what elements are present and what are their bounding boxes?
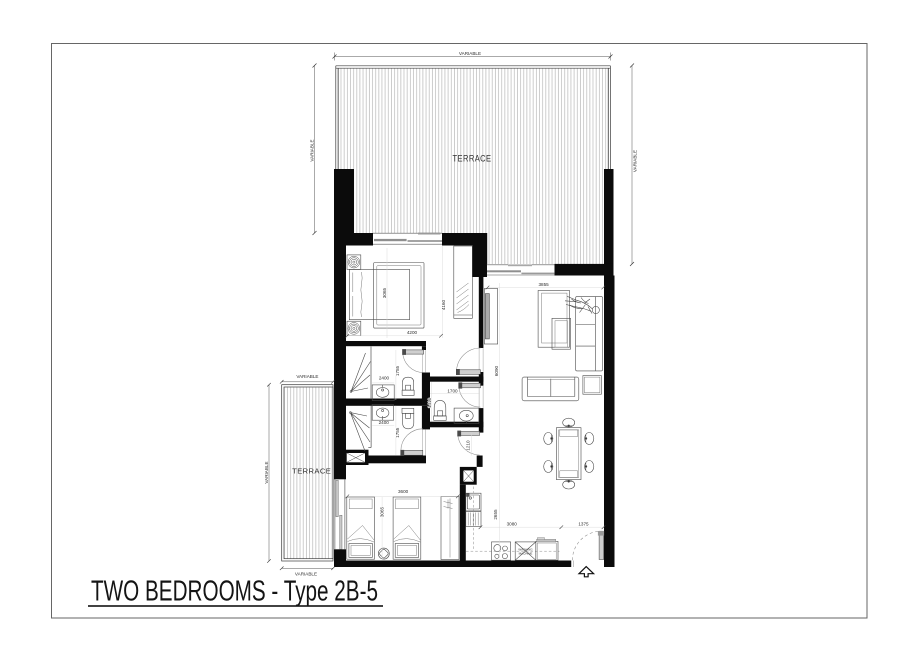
svg-text:3855: 3855 — [538, 282, 549, 287]
svg-text:VARIABLE: VARIABLE — [264, 461, 269, 483]
svg-text:VARIABLE: VARIABLE — [296, 374, 318, 379]
svg-text:2655: 2655 — [493, 509, 498, 520]
svg-text:1755: 1755 — [395, 365, 400, 376]
svg-text:TWO BEDROOMS - Type 2B-5: TWO BEDROOMS - Type 2B-5 — [91, 575, 378, 607]
svg-text:VARIABLE: VARIABLE — [633, 150, 638, 172]
svg-text:3065: 3065 — [382, 287, 387, 298]
svg-text:1375: 1375 — [578, 522, 589, 527]
svg-text:1700: 1700 — [447, 388, 458, 393]
svg-text:1755: 1755 — [395, 427, 400, 438]
svg-text:2400: 2400 — [379, 420, 390, 425]
svg-text:TERRACE: TERRACE — [453, 154, 492, 164]
svg-text:VARIABLE: VARIABLE — [309, 139, 314, 161]
svg-text:2400: 2400 — [379, 375, 390, 380]
svg-text:3065: 3065 — [380, 506, 385, 517]
svg-text:4200: 4200 — [407, 330, 418, 335]
svg-text:4160: 4160 — [441, 299, 446, 310]
svg-text:3080: 3080 — [507, 522, 518, 527]
svg-text:VARIABLE: VARIABLE — [459, 51, 481, 56]
svg-text:3600: 3600 — [398, 489, 409, 494]
svg-text:1210: 1210 — [465, 440, 470, 451]
svg-text:TERRACE: TERRACE — [292, 467, 331, 476]
svg-text:MACHINE: MACHINE — [519, 551, 533, 555]
svg-text:1410: 1410 — [427, 397, 432, 408]
svg-text:6090: 6090 — [494, 365, 499, 376]
